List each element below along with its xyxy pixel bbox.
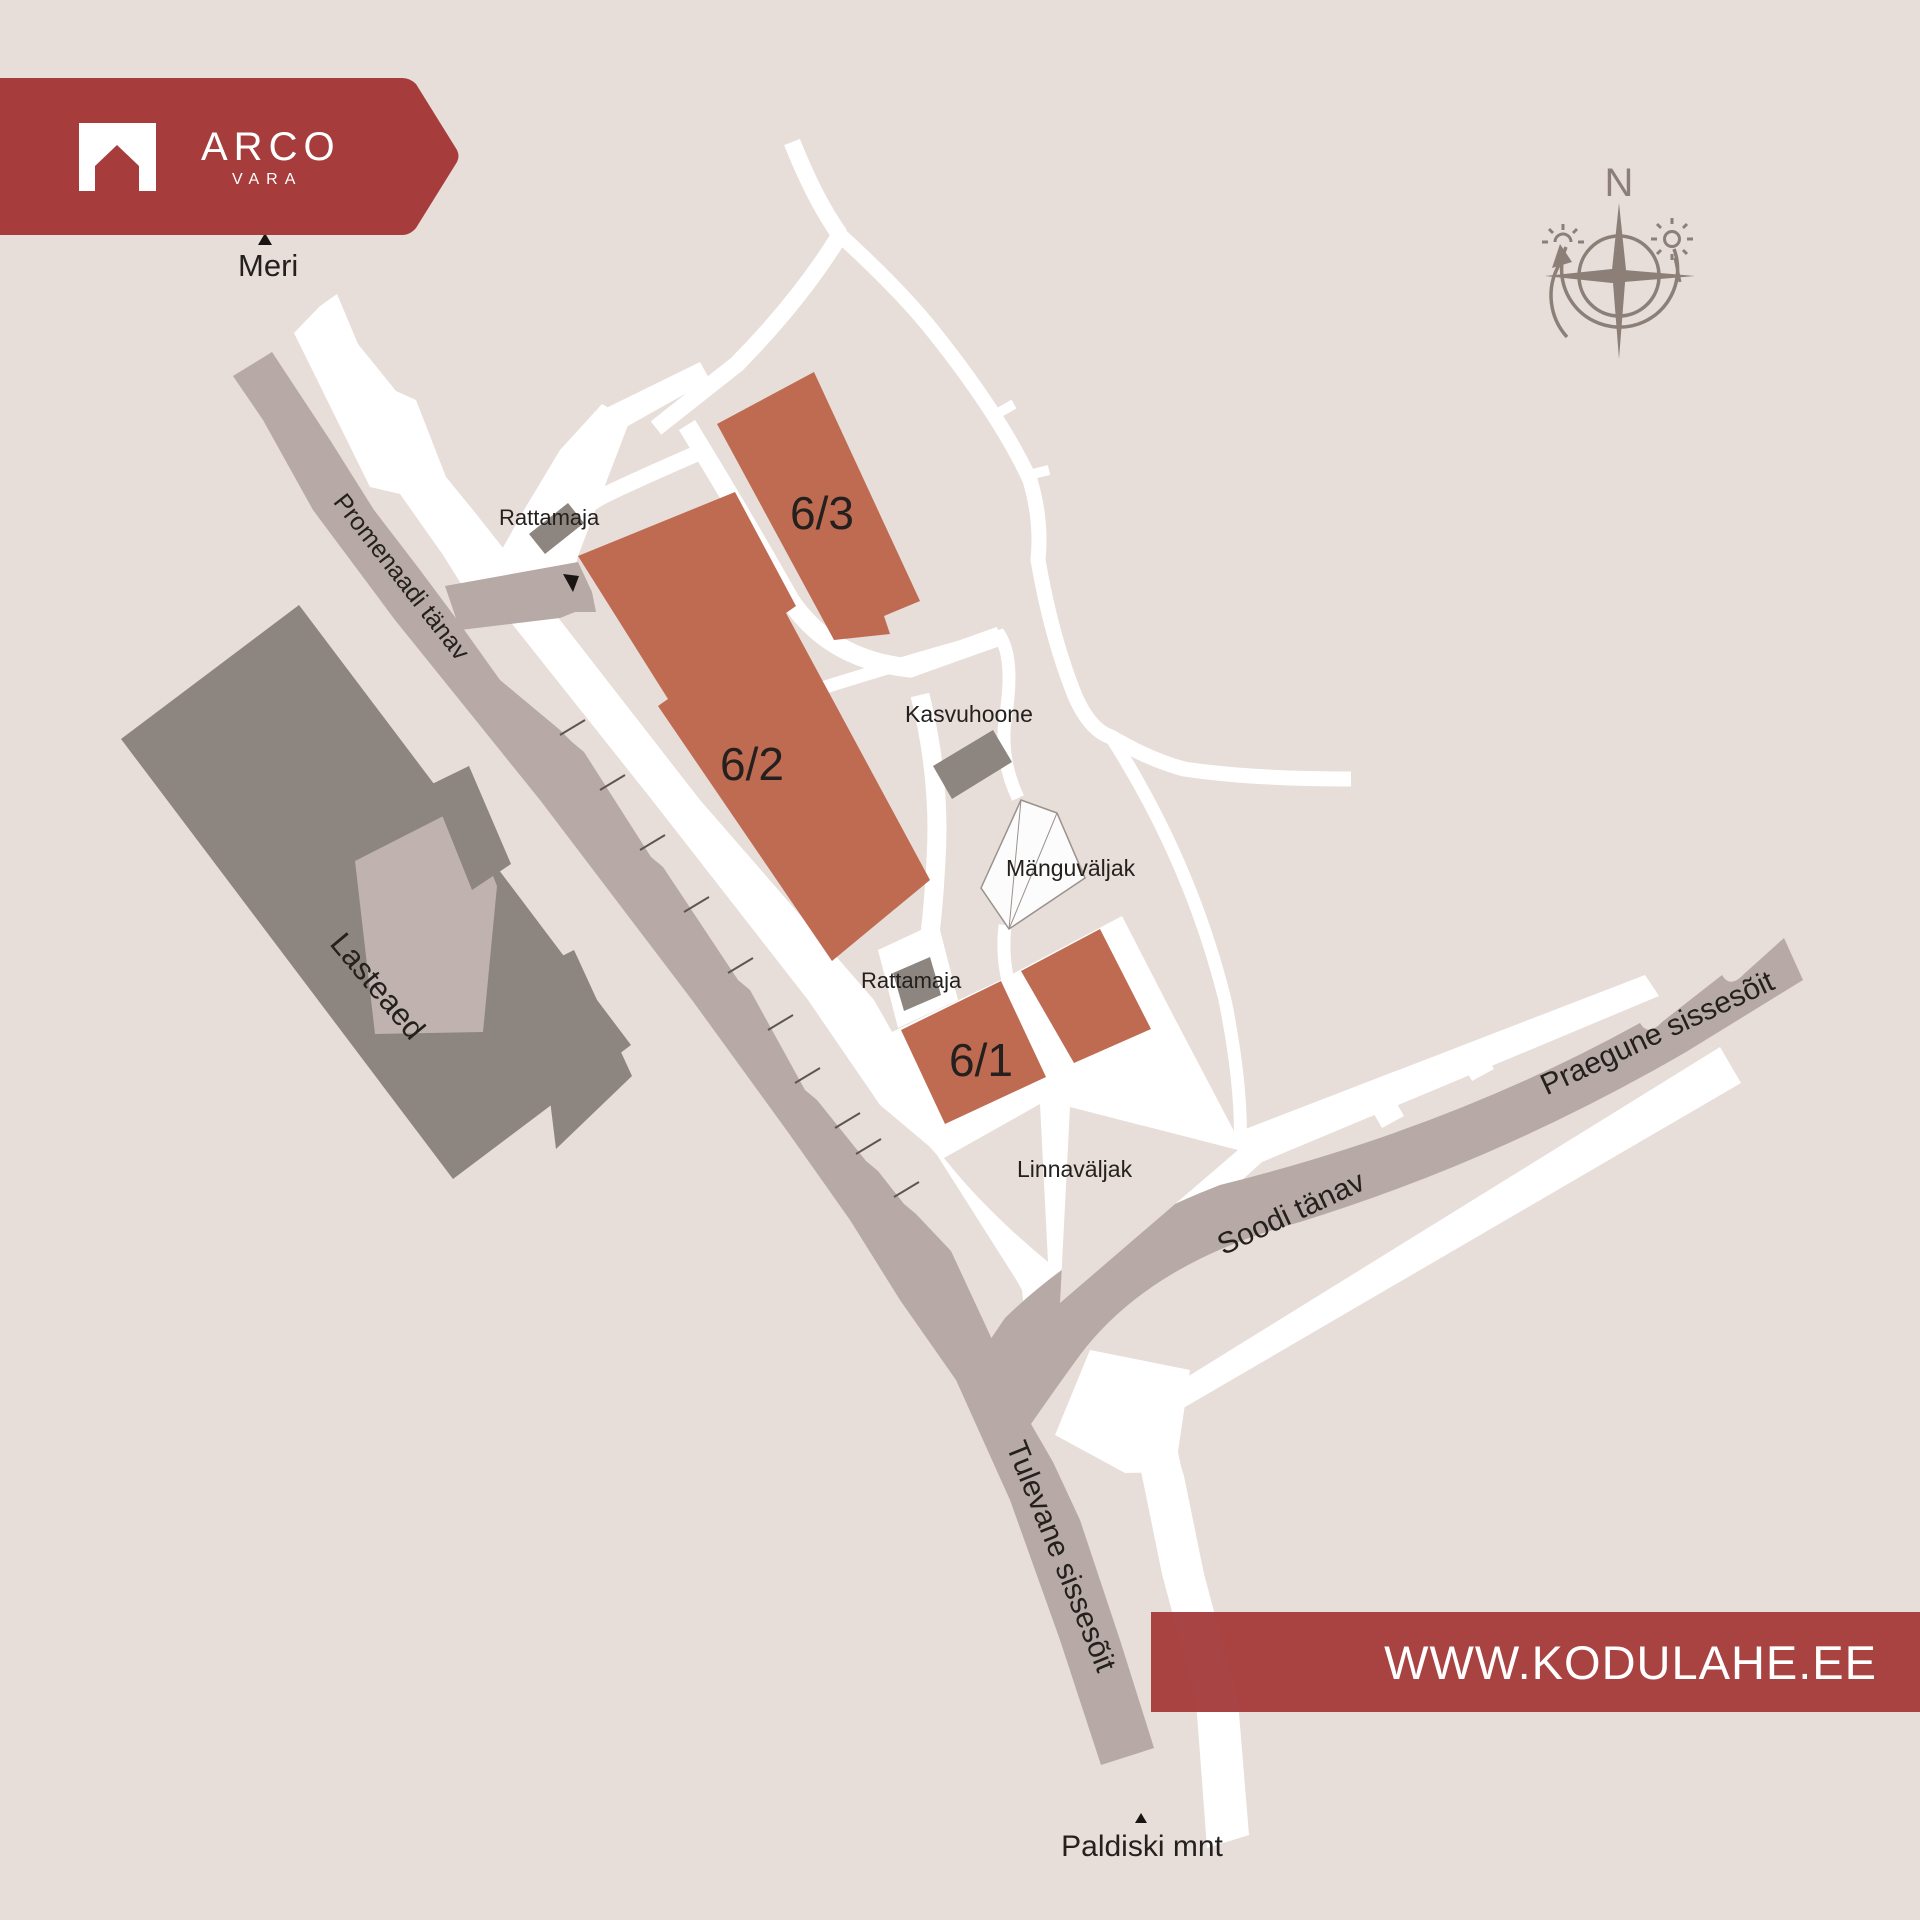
svg-text:WWW.KODULAHE.EE: WWW.KODULAHE.EE bbox=[1384, 1636, 1877, 1689]
svg-text:Meri: Meri bbox=[238, 248, 298, 283]
svg-text:6/3: 6/3 bbox=[790, 487, 854, 539]
svg-text:6/2: 6/2 bbox=[720, 738, 784, 790]
svg-text:ARCO: ARCO bbox=[201, 125, 341, 169]
svg-text:VARA: VARA bbox=[232, 171, 302, 188]
svg-text:6/1: 6/1 bbox=[949, 1034, 1013, 1086]
svg-text:Rattamaja: Rattamaja bbox=[499, 505, 600, 530]
svg-text:Mänguväljak: Mänguväljak bbox=[1006, 855, 1136, 881]
svg-text:N: N bbox=[1605, 161, 1634, 205]
svg-text:Linnaväljak: Linnaväljak bbox=[1017, 1156, 1133, 1182]
svg-text:Rattamaja: Rattamaja bbox=[861, 968, 962, 993]
svg-text:Kasvuhoone: Kasvuhoone bbox=[905, 701, 1033, 727]
svg-text:Paldiski mnt: Paldiski mnt bbox=[1061, 1830, 1223, 1863]
